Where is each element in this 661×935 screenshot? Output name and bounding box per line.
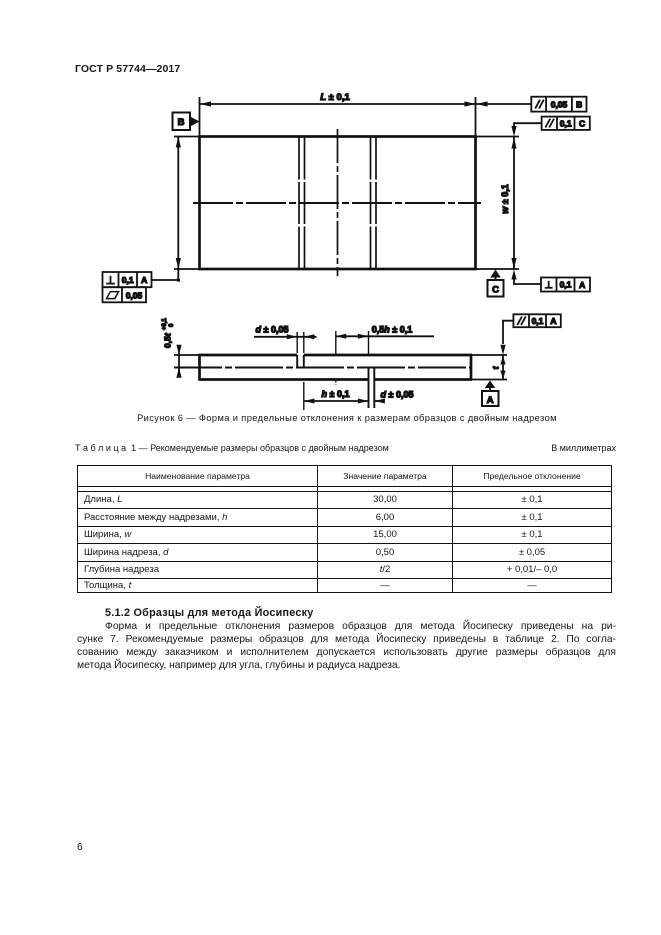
svg-text:d ± 0,05: d ± 0,05 bbox=[256, 325, 289, 335]
svg-text:A: A bbox=[579, 280, 585, 290]
svg-text:0,5h ± 0,1: 0,5h ± 0,1 bbox=[372, 325, 412, 335]
svg-text:0,1: 0,1 bbox=[122, 275, 134, 285]
svg-text:0,05: 0,05 bbox=[126, 290, 143, 300]
svg-text:C: C bbox=[579, 119, 585, 129]
svg-text:t: t bbox=[491, 365, 501, 369]
svg-text:0,5t: 0,5t bbox=[163, 332, 173, 348]
svg-text:A: A bbox=[487, 395, 494, 406]
svg-text:h ± 0,1: h ± 0,1 bbox=[322, 389, 350, 399]
svg-text:C: C bbox=[492, 284, 499, 295]
svg-text:w ± 0,1: w ± 0,1 bbox=[500, 184, 510, 213]
svg-text:L ± 0,1: L ± 0,1 bbox=[320, 92, 350, 103]
svg-text:0,1: 0,1 bbox=[560, 280, 572, 290]
svg-text:A: A bbox=[550, 316, 556, 326]
svg-text:0,05: 0,05 bbox=[551, 100, 568, 110]
svg-text:B: B bbox=[576, 100, 582, 110]
svg-text:+0,1: +0,1 bbox=[162, 317, 168, 330]
svg-text:A: A bbox=[141, 275, 147, 285]
svg-text:B: B bbox=[178, 117, 185, 128]
svg-text:d ± 0,05: d ± 0,05 bbox=[381, 390, 414, 400]
svg-text:0: 0 bbox=[169, 323, 175, 327]
svg-text:0,1: 0,1 bbox=[532, 316, 544, 326]
svg-text:0,1: 0,1 bbox=[560, 119, 572, 129]
